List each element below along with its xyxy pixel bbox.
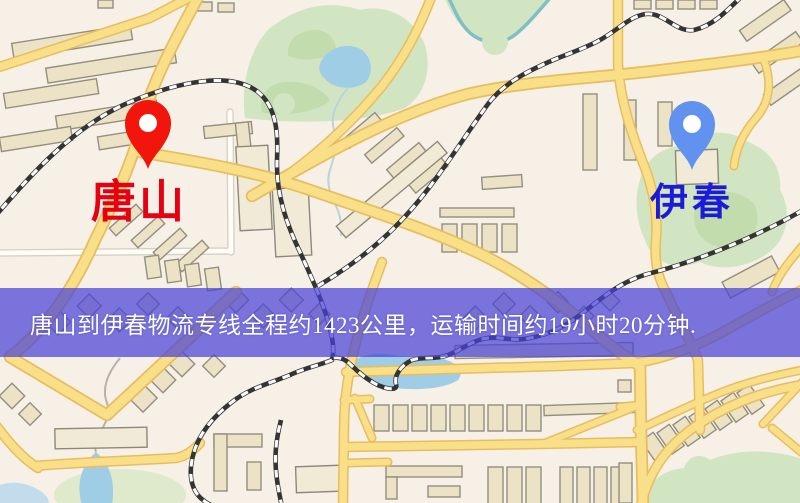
- route-info-text: 唐山到伊春物流专线全程约1423公里，运输时间约19小时20分钟.: [0, 306, 696, 340]
- map-screenshot: 唐山 伊春 唐山到伊春物流专线全程约1423公里，运输时间约19小时20分钟.: [0, 0, 800, 503]
- destination-pin[interactable]: [666, 98, 718, 175]
- map-background: [0, 0, 800, 503]
- blue-map-pin-icon: [666, 98, 718, 170]
- origin-pin[interactable]: [122, 97, 174, 174]
- red-map-pin-icon: [122, 97, 174, 169]
- origin-city-label: 唐山: [91, 180, 187, 225]
- route-info-banner: 唐山到伊春物流专线全程约1423公里，运输时间约19小时20分钟.: [0, 288, 800, 357]
- destination-city-label: 伊春: [650, 184, 734, 222]
